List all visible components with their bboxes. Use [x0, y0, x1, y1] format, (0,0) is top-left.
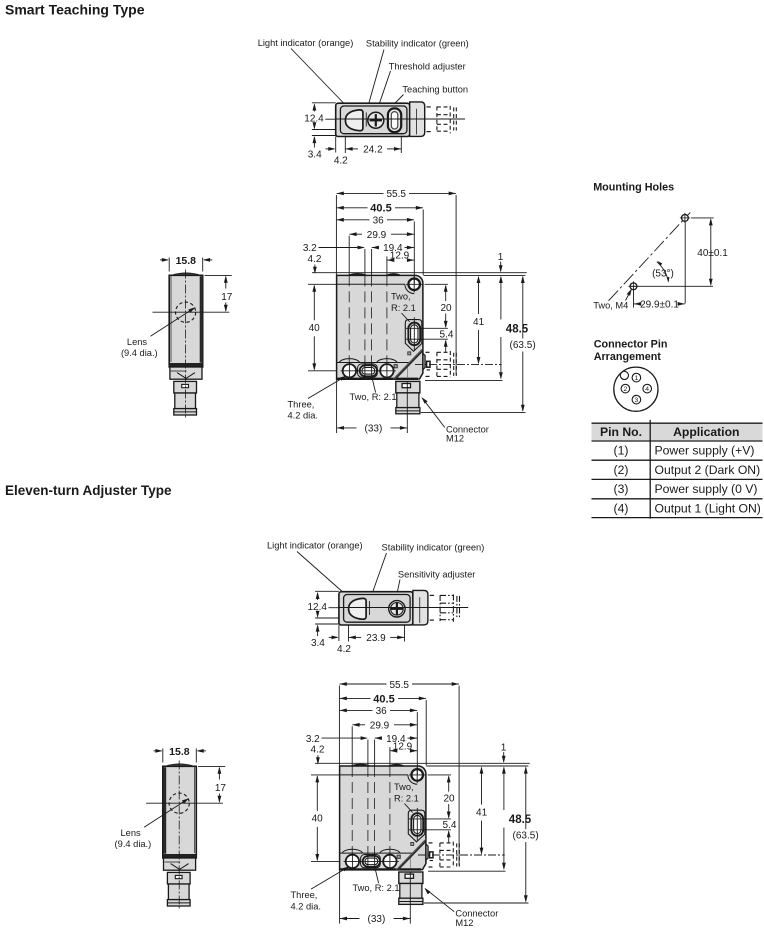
- svg-text:4.2: 4.2: [334, 155, 348, 166]
- svg-text:(9.4 dia.): (9.4 dia.): [121, 348, 158, 358]
- svg-text:55.5: 55.5: [386, 189, 406, 200]
- svg-text:Two,: Two,: [394, 782, 414, 792]
- svg-text:(9.4 dia.): (9.4 dia.): [115, 839, 152, 849]
- svg-text:4.2 dia.: 4.2 dia.: [288, 411, 319, 421]
- svg-text:1: 1: [635, 375, 639, 382]
- svg-text:36: 36: [373, 216, 385, 227]
- svg-text:Power supply (+V): Power supply (+V): [655, 444, 755, 458]
- svg-text:Pin No.: Pin No.: [600, 425, 642, 439]
- svg-text:Stability indicator (green): Stability indicator (green): [366, 39, 469, 49]
- svg-text:Power supply (0 V): Power supply (0 V): [655, 482, 758, 496]
- svg-text:4.2: 4.2: [308, 254, 322, 265]
- svg-text:(4): (4): [614, 501, 629, 515]
- svg-text:29.9±0.1: 29.9±0.1: [640, 300, 679, 311]
- svg-text:R: 2.1: R: 2.1: [394, 794, 419, 804]
- svg-text:3.4: 3.4: [308, 150, 322, 161]
- svg-text:Two,: Two,: [391, 291, 411, 301]
- svg-text:3: 3: [635, 397, 639, 404]
- svg-text:1: 1: [498, 252, 504, 263]
- svg-text:M12: M12: [455, 918, 473, 928]
- svg-text:(53°): (53°): [652, 269, 674, 280]
- svg-text:(1): (1): [614, 444, 629, 458]
- svg-text:Threshold adjuster: Threshold adjuster: [389, 61, 466, 71]
- svg-text:M12: M12: [446, 434, 464, 444]
- svg-text:5.4: 5.4: [443, 820, 457, 831]
- svg-text:20: 20: [443, 793, 455, 804]
- svg-text:29.9: 29.9: [367, 230, 387, 241]
- svg-text:5.4: 5.4: [440, 329, 454, 340]
- svg-text:24.2: 24.2: [363, 144, 383, 155]
- svg-text:Lens: Lens: [127, 337, 148, 347]
- svg-text:41: 41: [473, 317, 485, 328]
- svg-text:Lens: Lens: [121, 828, 142, 838]
- svg-text:Light indicator (orange): Light indicator (orange): [258, 38, 354, 48]
- svg-text:55.5: 55.5: [389, 680, 409, 691]
- svg-text:4.2 dia.: 4.2 dia.: [291, 901, 322, 911]
- svg-text:Mounting Holes: Mounting Holes: [593, 182, 674, 194]
- svg-text:17: 17: [215, 783, 227, 794]
- svg-text:(63.5): (63.5): [513, 831, 539, 842]
- svg-text:40: 40: [309, 323, 321, 334]
- svg-text:1: 1: [501, 743, 507, 754]
- svg-text:3.4: 3.4: [311, 638, 325, 649]
- svg-text:41: 41: [476, 808, 488, 819]
- svg-text:Two, M4: Two, M4: [593, 300, 628, 310]
- svg-text:3.2: 3.2: [306, 734, 320, 745]
- svg-text:Light indicator (orange): Light indicator (orange): [267, 541, 363, 551]
- svg-text:(33): (33): [365, 424, 383, 435]
- svg-text:Two, R: 2.1: Two, R: 2.1: [350, 392, 397, 402]
- svg-text:(63.5): (63.5): [510, 340, 536, 351]
- svg-text:Output 2 (Dark ON): Output 2 (Dark ON): [655, 463, 761, 477]
- svg-text:15.8: 15.8: [169, 746, 190, 758]
- svg-text:Smart Teaching Type: Smart Teaching Type: [5, 2, 145, 18]
- svg-text:Teaching button: Teaching button: [402, 85, 468, 95]
- svg-text:Sensitivity adjuster: Sensitivity adjuster: [398, 569, 476, 579]
- svg-text:(2): (2): [614, 463, 629, 477]
- svg-text:(33): (33): [368, 914, 386, 925]
- svg-text:48.5: 48.5: [509, 814, 532, 826]
- svg-text:40±0.1: 40±0.1: [697, 248, 728, 259]
- svg-text:17: 17: [221, 292, 233, 303]
- svg-text:2: 2: [624, 386, 628, 393]
- svg-text:Three,: Three,: [288, 400, 315, 410]
- svg-text:12.9: 12.9: [393, 741, 413, 752]
- svg-text:Three,: Three,: [291, 890, 318, 900]
- svg-text:(3): (3): [614, 482, 629, 496]
- svg-text:4.2: 4.2: [337, 644, 351, 655]
- svg-text:Stability indicator (green): Stability indicator (green): [382, 542, 485, 552]
- svg-text:15.8: 15.8: [176, 255, 197, 267]
- svg-text:23.9: 23.9: [366, 633, 386, 644]
- svg-text:40.5: 40.5: [370, 203, 391, 215]
- svg-text:Arrangement: Arrangement: [594, 351, 662, 363]
- svg-text:Output 1 (Light ON): Output 1 (Light ON): [655, 501, 761, 515]
- svg-text:48.5: 48.5: [506, 323, 529, 335]
- svg-text:Two, R: 2.1: Two, R: 2.1: [353, 883, 400, 893]
- svg-text:Connector Pin: Connector Pin: [594, 339, 668, 351]
- svg-text:3.2: 3.2: [303, 243, 317, 254]
- svg-text:4: 4: [645, 386, 649, 393]
- svg-text:29.9: 29.9: [370, 721, 390, 732]
- svg-text:36: 36: [376, 706, 388, 717]
- svg-text:40: 40: [312, 814, 324, 825]
- svg-text:4.2: 4.2: [311, 745, 325, 756]
- svg-text:20: 20: [440, 303, 452, 314]
- svg-text:R: 2.1: R: 2.1: [391, 303, 416, 313]
- svg-text:Eleven-turn Adjuster Type: Eleven-turn Adjuster Type: [5, 483, 172, 498]
- svg-text:12.9: 12.9: [390, 251, 410, 262]
- svg-text:Application: Application: [673, 425, 739, 439]
- svg-text:40.5: 40.5: [373, 693, 394, 705]
